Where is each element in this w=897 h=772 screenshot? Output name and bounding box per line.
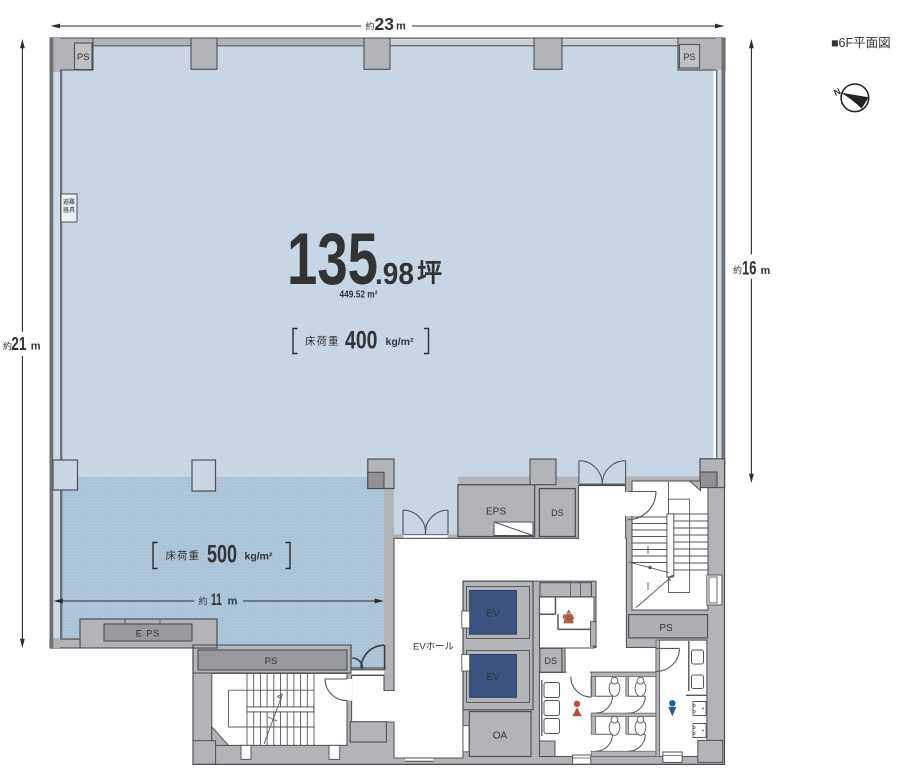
svg-text:E PS: E PS (136, 629, 161, 639)
svg-text:DS: DS (551, 508, 564, 518)
svg-text:23: 23 (375, 14, 395, 34)
svg-text:EV: EV (486, 672, 500, 683)
svg-text:DS: DS (545, 656, 558, 666)
svg-text:11: 11 (211, 590, 222, 609)
svg-text:約: 約 (199, 596, 208, 607)
svg-text:m: m (228, 596, 238, 608)
svg-text:約: 約 (733, 265, 742, 276)
svg-text:PS: PS (659, 623, 673, 634)
svg-text:m: m (761, 265, 771, 277)
svg-text:m: m (396, 21, 406, 33)
svg-text:坪: 坪 (417, 260, 442, 288)
svg-text:449.52 m²: 449.52 m² (340, 289, 378, 301)
svg-text:EV: EV (486, 609, 500, 620)
svg-text:床荷重: 床荷重 (305, 335, 340, 348)
svg-text:21: 21 (11, 334, 26, 354)
svg-text:400: 400 (345, 326, 378, 354)
svg-text:PS: PS (265, 656, 278, 667)
svg-text:kg/m²: kg/m² (386, 336, 415, 348)
svg-text:.98: .98 (375, 256, 414, 291)
svg-text:PS: PS (683, 52, 695, 62)
svg-text:器具: 器具 (63, 207, 75, 214)
svg-text:床荷重: 床荷重 (166, 549, 201, 562)
svg-text:PS: PS (77, 52, 90, 63)
svg-text:EPS: EPS (486, 507, 506, 518)
svg-text:■6F平面図: ■6F平面図 (831, 36, 891, 50)
svg-text:EVホール: EVホール (413, 642, 455, 653)
svg-text:500: 500 (207, 541, 237, 569)
svg-text:m: m (31, 341, 41, 353)
svg-text:kg/m²: kg/m² (245, 551, 274, 563)
svg-text:OA: OA (493, 731, 508, 742)
svg-text:約: 約 (366, 21, 375, 32)
svg-text:16: 16 (742, 259, 757, 280)
svg-text:避難: 避難 (63, 198, 75, 206)
